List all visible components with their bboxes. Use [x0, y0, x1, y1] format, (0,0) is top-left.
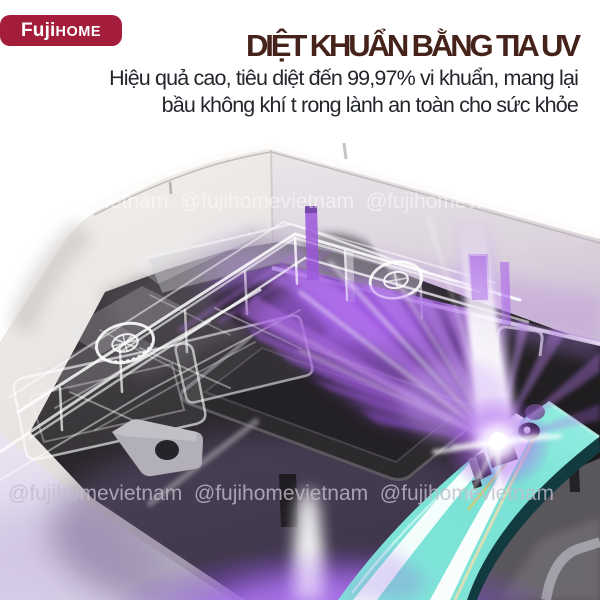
svg-text:@fujihomevietnam @fujihomevie: @fujihomevietnam @fujihomevietnam @fujih… [0, 190, 600, 213]
svg-text:@fujihomevietnam @fujihomevie: @fujihomevietnam @fujihomevietnam @fujih… [8, 482, 554, 505]
